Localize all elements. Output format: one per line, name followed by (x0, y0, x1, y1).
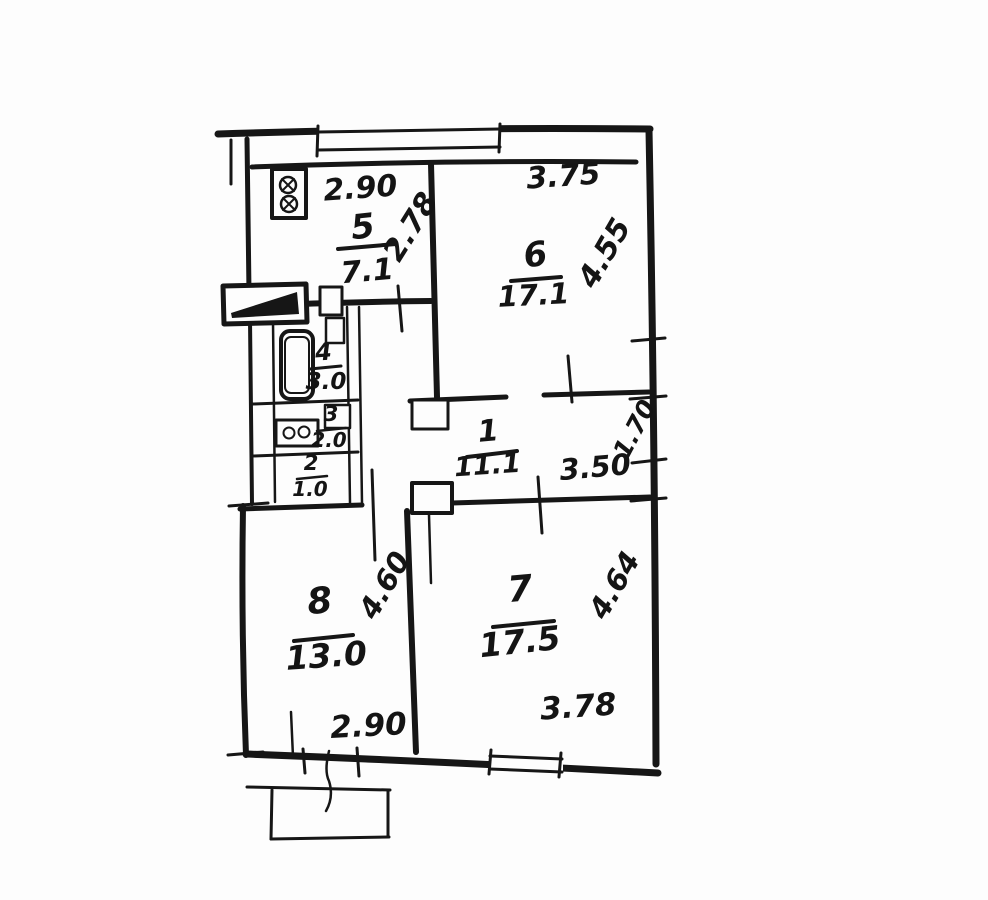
room-8-label: 8 13.0 4.60 2.90 (284, 546, 417, 746)
room-2-number: 2 (304, 451, 319, 475)
room-1-label: 1 11.1 3.50 1.70 (453, 395, 662, 487)
room-6-label: 3.75 6 17.1 4.55 (497, 156, 639, 313)
room-6-area: 17.1 (497, 276, 570, 314)
vent-shaft-icon (223, 284, 307, 324)
room-7-area: 17.5 (477, 618, 562, 665)
window-top-kitchen (317, 123, 501, 156)
room-3-number: 3 (324, 402, 339, 426)
room-6-dim-width: 3.75 (525, 156, 601, 196)
room-5-number: 5 (349, 206, 377, 248)
room-7-dim-width: 3.78 (539, 686, 618, 727)
balcony (247, 751, 390, 839)
room-2-label: 2 1.0 (292, 451, 328, 501)
hall-niche (412, 400, 452, 513)
room-6-number: 6 (521, 234, 550, 277)
room-8-area: 13.0 (284, 633, 368, 678)
room-6-dim-height: 4.55 (571, 212, 639, 294)
floor-plan-page: 2.90 5 7.1 2.78 3.75 6 17.1 4.55 4 3.0 3… (0, 0, 988, 900)
room-3-area: 2.0 (311, 428, 347, 452)
room-5-label: 2.90 5 7.1 2.78 (322, 168, 445, 291)
room-7-number: 7 (506, 568, 535, 611)
room-2-area: 1.0 (292, 477, 328, 501)
room-8-number: 8 (305, 580, 334, 623)
room-1-area: 11.1 (453, 448, 522, 484)
room-5-area: 7.1 (339, 252, 395, 291)
window-bottom-room7 (489, 750, 563, 777)
room-4-area: 3.0 (306, 369, 347, 395)
room-7-label: 7 17.5 4.64 3.78 (477, 546, 647, 728)
room-8-dim-width: 2.90 (329, 706, 407, 746)
room-4-number: 4 (313, 337, 333, 366)
floor-plan-drawing: 2.90 5 7.1 2.78 3.75 6 17.1 4.55 4 3.0 3… (0, 0, 988, 900)
stove-icon (272, 169, 306, 218)
room-1-number: 1 (476, 413, 500, 450)
room-7-dim-height: 4.64 (581, 546, 647, 626)
room-5-dim-width: 2.90 (322, 168, 398, 208)
